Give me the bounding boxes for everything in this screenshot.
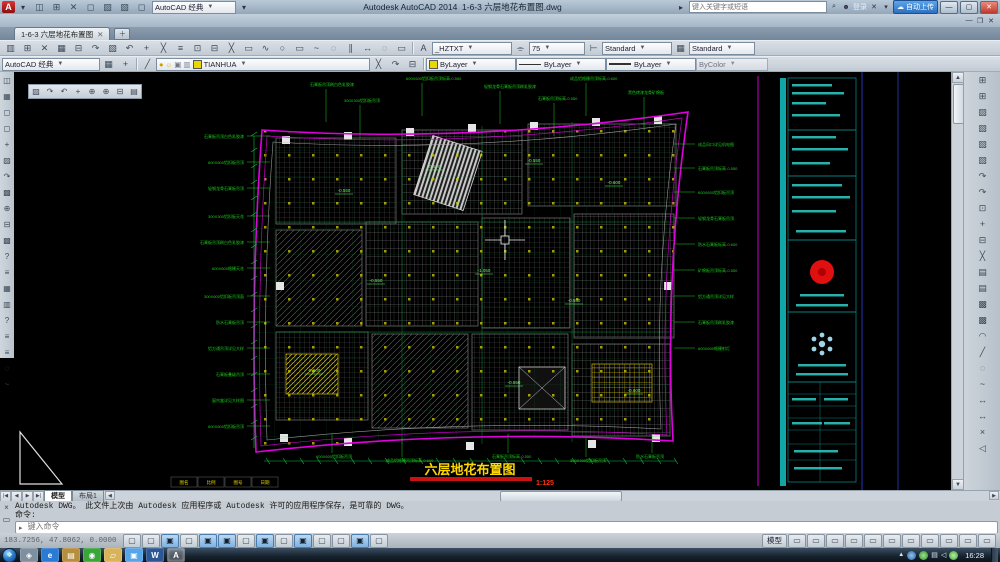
pan-realtime-icon[interactable]: ╳ bbox=[223, 41, 240, 56]
polar-tracking-toggle[interactable]: ▣ bbox=[199, 534, 217, 548]
zoom-previous-icon[interactable]: ○ bbox=[274, 41, 291, 56]
bring-above-objects-icon[interactable]: ↔ bbox=[974, 392, 992, 408]
search-icon[interactable]: ⌕ bbox=[829, 2, 839, 12]
cad-annotation: 600X600铝扣板吊顶 bbox=[208, 423, 244, 429]
layers-properties-toolbar: AutoCAD 经典▼ ▦+ ╱ ● ☼ ▣ ▥ TIANHUA ▼ ╳↷⊟ B… bbox=[0, 56, 1000, 72]
bottom-view-icon[interactable]: ↷ bbox=[43, 85, 57, 98]
clean-screen-icon[interactable]: ▭ bbox=[978, 534, 996, 548]
autoscale-icon[interactable]: ▭ bbox=[921, 534, 939, 548]
cad-annotation: 石膏板吊顶白色乳胶漆 bbox=[204, 133, 244, 139]
my-workspace-icon[interactable]: + bbox=[117, 57, 134, 72]
maximize-button[interactable]: ▢ bbox=[960, 1, 978, 14]
point-icon[interactable]: ▦ bbox=[0, 280, 15, 296]
make-block-icon[interactable]: ≡ bbox=[0, 264, 15, 280]
trim-icon[interactable]: + bbox=[974, 216, 992, 232]
move-icon[interactable]: ▧ bbox=[974, 152, 992, 168]
cad-annotation: -0.600 bbox=[628, 388, 641, 393]
break-icon[interactable]: ▤ bbox=[974, 264, 992, 280]
layer-lock-icon[interactable]: ▣ bbox=[174, 60, 181, 69]
taskbar-word-button[interactable]: W bbox=[146, 548, 164, 562]
construction-line-icon[interactable]: ▦ bbox=[0, 88, 15, 104]
cad-annotation: 铝方通吊顶详见大样 bbox=[698, 293, 734, 299]
cad-annotation: 黑色烤漆龙骨矿棉板 bbox=[628, 89, 664, 95]
command-history-line: Autodesk DWG。 此文件上次由 Autodesk 应用程序或 Auto… bbox=[15, 502, 998, 511]
seiso-view-icon[interactable]: ▤ bbox=[127, 85, 141, 98]
model-space-canvas[interactable]: 六层地花布置图 1:125 图名比例图号日期 石膏板吊顶白色乳胶漆600X600… bbox=[14, 72, 951, 490]
window-title: Autodesk AutoCAD 2014 1-6-3 六层地花布置图.dwg bbox=[252, 1, 673, 13]
command-customize-icon[interactable]: ▭ bbox=[3, 515, 11, 524]
workspace-icons: ▦+ bbox=[100, 57, 134, 72]
text-to-front-icon[interactable]: × bbox=[974, 424, 992, 440]
layer-on-icon[interactable]: ● bbox=[159, 60, 164, 69]
cad-annotation: 石膏板叠级吊顶 bbox=[216, 371, 244, 377]
cad-annotation: 石膏板吊顶刷乳胶漆 bbox=[698, 319, 734, 325]
taskbar-internet-explorer-button[interactable]: e bbox=[41, 548, 59, 562]
qat-customize-icon[interactable]: ▾ bbox=[238, 2, 250, 13]
network-tray-icon[interactable]: ▤ bbox=[931, 551, 938, 559]
taskbar-media-player-button[interactable]: ◈ bbox=[20, 548, 38, 562]
save-as-icon[interactable]: ◻ bbox=[82, 0, 99, 15]
workspace-dropdown[interactable]: AutoCAD 经典▼ bbox=[152, 1, 236, 14]
bottom-cell-label: 图号 bbox=[234, 480, 243, 486]
block-editor-icon[interactable]: ≡ bbox=[172, 41, 189, 56]
cad-annotation: 石膏板吊顶标高-0.550 bbox=[492, 453, 532, 459]
cad-annotation: -0.600 bbox=[608, 180, 621, 185]
tab-first-icon[interactable]: |◀ bbox=[0, 491, 11, 502]
a360-tray-icon[interactable] bbox=[907, 551, 916, 560]
text-height-dropdown[interactable]: 75▼ bbox=[529, 42, 585, 55]
join-icon[interactable]: ▤ bbox=[974, 280, 992, 296]
cad-annotation: 成品铝格栅吊顶标高-0.600 bbox=[570, 75, 618, 81]
new-tab-button[interactable]: ＋ bbox=[114, 28, 130, 40]
model-space-button[interactable]: 模型 bbox=[762, 534, 787, 548]
plot-style-dropdown: ByColor▼ bbox=[696, 58, 768, 71]
taskbar-clock: 16:28 bbox=[961, 551, 988, 560]
workspaces-dropdown[interactable]: AutoCAD 经典▼ bbox=[2, 58, 100, 71]
command-prompt-line: 命令: bbox=[15, 511, 998, 520]
scroll-left-icon[interactable]: ◀ bbox=[105, 491, 115, 500]
polygon-icon[interactable]: ◻ bbox=[0, 120, 15, 136]
cad-annotation: 防水石膏板吊顶 bbox=[216, 319, 244, 325]
zoom-window-icon[interactable]: ∿ bbox=[257, 41, 274, 56]
scroll-right-icon[interactable]: ▶ bbox=[989, 491, 999, 500]
layer-dropdown[interactable]: ● ☼ ▣ ▥ TIANHUA ▼ bbox=[156, 58, 370, 71]
spline-icon[interactable]: ⊕ bbox=[0, 200, 15, 216]
taskbar-folder-button[interactable]: ▱ bbox=[104, 548, 122, 562]
cad-annotation: 防水石膏板标高-0.600 bbox=[698, 241, 738, 247]
erase-icon[interactable]: ⊞ bbox=[974, 72, 992, 88]
bottom-cell-label: 日期 bbox=[261, 480, 270, 486]
command-line-panel: × ▭ Autodesk DWG。 此文件上次由 Autodesk 应用程序或 … bbox=[0, 501, 1000, 533]
scale-icon[interactable]: ↷ bbox=[974, 184, 992, 200]
chevron-down-icon: ▼ bbox=[207, 4, 213, 10]
title-block-strip bbox=[780, 78, 856, 486]
swiso-view-icon[interactable]: ⊟ bbox=[113, 85, 127, 98]
explode-icon[interactable]: ╱ bbox=[974, 344, 992, 360]
dim-style-dropdown[interactable]: Standard▼ bbox=[602, 42, 672, 55]
redo-icon[interactable]: ◻ bbox=[133, 0, 150, 15]
layer-plot-icon[interactable]: ▥ bbox=[184, 60, 191, 69]
send-under-objects-icon[interactable]: ↔ bbox=[974, 408, 992, 424]
cad-annotation: 300X300铝扣板天花 bbox=[208, 213, 244, 219]
bottom-cell-label: 比例 bbox=[207, 479, 216, 486]
paste-icon[interactable]: + bbox=[138, 41, 155, 56]
ucs-icon bbox=[20, 432, 62, 484]
taskbar-qq-button[interactable]: ◉ bbox=[83, 548, 101, 562]
document-window-controls: — ❐ ✕ bbox=[964, 16, 996, 26]
draw-toolbar: ◫▦◻◻+▨↷▩⊕⊟▩?≡▦▥?≡≡◌~ bbox=[0, 72, 15, 358]
cad-annotation: -0.600 bbox=[428, 164, 441, 169]
save-icon[interactable]: ✕ bbox=[36, 41, 53, 56]
title-bar: A ▾ ◫⊞✕◻▨▧◻ AutoCAD 经典▼ ▾ Autodesk AutoC… bbox=[0, 0, 1000, 14]
file-tab-bar: 1-6-3 六层地花布置图 ✕ ＋ bbox=[0, 27, 1000, 40]
taskbar-file-manager-group-button[interactable]: ▤ bbox=[62, 548, 80, 562]
text-style-dropdown[interactable]: _HZTXT▼ bbox=[432, 42, 512, 55]
layer-extra-icons: ╳↷⊟ bbox=[370, 57, 421, 72]
region-icon[interactable]: ≡ bbox=[0, 328, 15, 344]
quick-calc-icon[interactable]: ◌ bbox=[376, 41, 393, 56]
open-icon[interactable]: ⊞ bbox=[19, 41, 36, 56]
standard-toolbar: ▥⊞✕▦⊟↷▧↶+╳≡⊡⊟╳▭∿○▭~◌∥↔◌▭ A _HZTXT▼ ⌯ 75▼… bbox=[0, 40, 1000, 56]
cad-annotation: -0.550 bbox=[528, 158, 541, 163]
standard-toolbar-icons: ▥⊞✕▦⊟↷▧↶+╳≡⊡⊟╳▭∿○▭~◌∥↔◌▭ bbox=[2, 41, 410, 56]
cad-annotation: -0.550 bbox=[338, 188, 351, 193]
publish-icon[interactable]: ↷ bbox=[87, 41, 104, 56]
title-underline bbox=[410, 477, 532, 481]
start-button[interactable]: ❖ bbox=[2, 548, 17, 562]
linetype-dropdown[interactable]: ByLayer▼ bbox=[516, 58, 606, 71]
plot-preview-icon[interactable]: ⊟ bbox=[70, 41, 87, 56]
back-view-icon[interactable]: ⊕ bbox=[99, 85, 113, 98]
cad-annotation: 600X600铝扣板吊顶标高-0.550 bbox=[406, 75, 462, 81]
pan-icon[interactable]: ▭ bbox=[826, 534, 844, 548]
status-toggles: ▢▢▣▢▣▣▢▣▢▣▢▢▣▢ bbox=[123, 534, 388, 548]
modify-toolbar: ⊞⊞▨▧▧▧↷↷⊡+⊟╳▤▤▩▩◠╱◌~↔↔×◁ bbox=[963, 72, 1000, 490]
a360-upload-button[interactable]: ☁ 自动上传 bbox=[893, 0, 938, 14]
save-icon[interactable]: ✕ bbox=[65, 0, 82, 15]
rectangle-icon[interactable]: + bbox=[0, 136, 15, 152]
show-motion-icon[interactable]: ▭ bbox=[883, 534, 901, 548]
cad-annotation: -0.550 bbox=[370, 278, 383, 283]
array-icon[interactable]: ▧ bbox=[974, 136, 992, 152]
quick-view-layouts-icon[interactable]: ▭ bbox=[788, 534, 806, 548]
file-tab[interactable]: 1-6-3 六层地花布置图 ✕ bbox=[14, 27, 110, 40]
tab-next-icon[interactable]: ▶ bbox=[22, 491, 33, 502]
object-snap-tracking-toggle[interactable]: ▣ bbox=[256, 534, 274, 548]
table-style-icon[interactable]: ▦ bbox=[672, 41, 689, 56]
zoom-realtime-icon[interactable]: ▭ bbox=[240, 41, 257, 56]
markup-set-manager-icon[interactable]: ↔ bbox=[359, 41, 376, 56]
cad-annotation: 600X600格栅射灯 bbox=[698, 345, 730, 351]
3d-object-snap-toggle[interactable]: ▢ bbox=[237, 534, 255, 548]
workspace-settings-icon[interactable]: ▦ bbox=[100, 57, 117, 72]
cad-annotation: 石膏板吊顶刷白色乳胶漆 bbox=[310, 81, 354, 87]
autocad-logo-icon[interactable]: A bbox=[2, 1, 15, 13]
doc-close-icon[interactable]: ✕ bbox=[986, 16, 996, 26]
gradient-icon[interactable]: ? bbox=[0, 312, 15, 328]
object-snap-toggle[interactable]: ▣ bbox=[218, 534, 236, 548]
hidden-icons-arrow[interactable]: ▲ bbox=[898, 552, 904, 558]
exchange-apps-icon[interactable]: ✕ bbox=[869, 2, 879, 12]
windows-taskbar: ❖ ◈e▤◉▱▣WA ▲ ▤ ◁ 16:28 bbox=[0, 548, 1000, 562]
cad-annotation: -1.050 bbox=[478, 268, 491, 273]
layer-color-chip bbox=[193, 60, 202, 69]
volume-tray-icon[interactable]: ◁ bbox=[941, 551, 946, 559]
fillet-icon[interactable]: ▩ bbox=[974, 312, 992, 328]
layer-name: TIANHUA bbox=[204, 60, 237, 69]
desktop: A ▾ ◫⊞✕◻▨▧◻ AutoCAD 经典▼ ▾ Autodesk AutoC… bbox=[0, 0, 1000, 562]
snap-mode-toggle[interactable]: ▢ bbox=[142, 534, 160, 548]
minimize-button[interactable]: — bbox=[940, 1, 958, 14]
ortho-mode-toggle[interactable]: ▢ bbox=[180, 534, 198, 548]
lineweight-toggle[interactable]: ▢ bbox=[313, 534, 331, 548]
cad-annotation: 600X600铝扣板吊顶 bbox=[316, 453, 352, 459]
cad-annotation: 轻钢龙骨石膏板吊顶 bbox=[208, 185, 244, 191]
insert-block-icon[interactable]: ? bbox=[0, 248, 15, 264]
tab-prev-icon[interactable]: ◀ bbox=[11, 491, 22, 502]
doc-minimize-icon[interactable]: — bbox=[964, 16, 974, 26]
view-floating-toolbar: ▨↷↶+⊕⊕⊟▤ bbox=[28, 84, 142, 99]
taskbar-notes-app-button[interactable]: ▣ bbox=[125, 548, 143, 562]
drawing-area: ◫▦◻◻+▨↷▩⊕⊟▩?≡▦▥?≡≡◌~ bbox=[0, 72, 1000, 490]
plot-icon[interactable]: ▦ bbox=[53, 41, 70, 56]
new-icon[interactable]: ▥ bbox=[2, 41, 19, 56]
company-logo bbox=[812, 333, 833, 356]
drawing-title: 六层地花布置图 bbox=[424, 462, 515, 477]
signin-label[interactable]: 登录 bbox=[853, 2, 867, 12]
horizontal-scrollbar[interactable]: ◀ ▶ bbox=[105, 491, 999, 501]
tab-last-icon[interactable]: ▶| bbox=[33, 491, 44, 502]
cad-annotation: 轻钢龙骨石膏板吊顶刷乳胶漆 bbox=[484, 83, 536, 89]
redo-icon[interactable]: ⊟ bbox=[206, 41, 223, 56]
tab-close-icon[interactable]: ✕ bbox=[97, 30, 103, 39]
copy-icon[interactable]: ↶ bbox=[121, 41, 138, 56]
qnew-icon[interactable]: ◫ bbox=[31, 0, 48, 15]
break-at-point-icon[interactable]: ╳ bbox=[974, 248, 992, 264]
cad-annotation: 600X600铝扣板吊顶 bbox=[698, 189, 734, 195]
cad-annotation: 600X600格栅天花 bbox=[212, 265, 244, 271]
ellipse-arc-icon[interactable]: ▩ bbox=[0, 232, 15, 248]
table-icon[interactable]: ≡ bbox=[0, 344, 15, 360]
workspace-value: AutoCAD 经典 bbox=[155, 2, 203, 13]
command-close-icon[interactable]: × bbox=[4, 503, 9, 512]
cad-annotation: 600X600铝扣板吊顶 bbox=[208, 159, 244, 165]
chevron-down-icon: ▼ bbox=[241, 61, 247, 67]
close-button[interactable]: ✕ bbox=[980, 1, 998, 14]
help-dropdown-icon[interactable]: ▾ bbox=[881, 2, 891, 12]
arc-icon[interactable]: ▨ bbox=[0, 152, 15, 168]
infer-constraints-toggle[interactable]: ▢ bbox=[123, 534, 141, 548]
cad-annotation: 矿棉板吊顶标高-0.550 bbox=[698, 267, 738, 273]
table-style-dropdown[interactable]: Standard▼ bbox=[689, 42, 755, 55]
steering-wheel-icon[interactable]: ▭ bbox=[864, 534, 882, 548]
extend-icon[interactable]: ⊟ bbox=[974, 232, 992, 248]
open-icon[interactable]: ⊞ bbox=[48, 0, 65, 15]
workspace-switching-icon[interactable]: ▭ bbox=[940, 534, 958, 548]
selection-cycling-toggle[interactable]: ▢ bbox=[370, 534, 388, 548]
circle-icon[interactable]: ↷ bbox=[0, 168, 15, 184]
bottom-cell-label: 图名 bbox=[180, 479, 189, 486]
layer-manager-icons: ╱ bbox=[139, 57, 156, 72]
cad-annotation: 石膏板吊顶标高-0.550 bbox=[538, 95, 578, 101]
offset-icon[interactable]: ▧ bbox=[974, 120, 992, 136]
left-view-icon[interactable]: ↶ bbox=[57, 85, 71, 98]
design-center-icon[interactable]: ~ bbox=[308, 41, 325, 56]
dynamic-input-toggle[interactable]: ▣ bbox=[294, 534, 312, 548]
sheet-set-manager-icon[interactable]: ∥ bbox=[342, 41, 359, 56]
cad-drawing: 六层地花布置图 1:125 图名比例图号日期 石膏板吊顶白色乳胶漆600X600… bbox=[14, 72, 951, 490]
dynamic-ucs-toggle[interactable]: ▢ bbox=[275, 534, 293, 548]
search-expand-icon[interactable]: ▸ bbox=[675, 2, 687, 13]
plot-icon[interactable]: ▨ bbox=[99, 0, 116, 15]
cad-annotation: 铝方通吊顶详见大样 bbox=[208, 345, 244, 351]
menu-bar: — ❐ ✕ bbox=[0, 14, 1000, 27]
layer-properties-manager-icon[interactable]: ╱ bbox=[139, 57, 156, 72]
cad-annotation: -0.550 bbox=[508, 380, 521, 385]
text-style-icon[interactable]: A bbox=[415, 41, 432, 56]
add-selected-icon[interactable]: ~ bbox=[0, 376, 15, 392]
quick-access-toolbar: ◫⊞✕◻▨▧◻ bbox=[31, 0, 150, 15]
undo-icon[interactable]: ⊡ bbox=[189, 41, 206, 56]
cad-annotation: -0.550 bbox=[568, 298, 581, 303]
toolbar-lock-icon[interactable]: ▭ bbox=[959, 534, 977, 548]
dim-style-icon[interactable]: ⊢ bbox=[585, 41, 602, 56]
ellipse-icon[interactable]: ⊟ bbox=[0, 216, 15, 232]
mirror-icon[interactable]: ▨ bbox=[974, 104, 992, 120]
front-view-icon[interactable]: ⊕ bbox=[85, 85, 99, 98]
right-view-icon[interactable]: + bbox=[71, 85, 85, 98]
user-icon[interactable]: ☻ bbox=[841, 2, 851, 12]
tool-palettes-icon[interactable]: ◌ bbox=[325, 41, 342, 56]
doc-restore-icon[interactable]: ❐ bbox=[975, 16, 985, 26]
grid-display-toggle[interactable]: ▣ bbox=[161, 534, 179, 548]
help-icon[interactable]: ▭ bbox=[393, 41, 410, 56]
zoom-icon[interactable]: ▭ bbox=[845, 534, 863, 548]
layer-freeze-icon[interactable]: ☼ bbox=[166, 60, 173, 69]
cad-annotation: 成品铝格栅吊顶标高-0.600 bbox=[386, 457, 434, 463]
line-icon[interactable]: ◫ bbox=[0, 72, 15, 88]
make-object-layer-current-icon[interactable]: ╳ bbox=[370, 57, 387, 72]
cad-annotation: 300X300铝扣板吊顶 bbox=[344, 97, 380, 103]
cad-annotation: 防水石膏板吊顶 bbox=[636, 453, 664, 459]
revision-cloud-icon[interactable]: ▩ bbox=[0, 184, 15, 200]
copy-icon[interactable]: ⊞ bbox=[974, 88, 992, 104]
cad-annotation: 成品风口详见机电图 bbox=[698, 141, 734, 147]
command-arrow-icon[interactable]: ▸ bbox=[19, 524, 23, 532]
undo-icon[interactable]: ▧ bbox=[116, 0, 133, 15]
cad-annotation: 300X300铝扣板吊顶 bbox=[570, 457, 606, 463]
send-to-back-icon[interactable]: ~ bbox=[974, 376, 992, 392]
stretch-icon[interactable]: ⊡ bbox=[974, 200, 992, 216]
safety-tray-icon[interactable] bbox=[919, 551, 928, 560]
taskbar-autocad-button[interactable]: A bbox=[167, 548, 185, 562]
show-desktop-button[interactable] bbox=[991, 548, 998, 562]
vertical-scrollbar[interactable]: ▲ ▼ bbox=[951, 72, 963, 490]
shield-tray-icon[interactable] bbox=[949, 551, 958, 560]
drawing-scale: 1:125 bbox=[536, 480, 554, 487]
bring-to-front-icon[interactable]: ◌ bbox=[974, 360, 992, 376]
cad-annotation: 石膏板吊顶刷白色乳胶漆 bbox=[200, 239, 244, 245]
coordinates-readout: 183.7256, 47.8062, 0.0000 bbox=[4, 537, 122, 545]
hatch-icon[interactable]: ▥ bbox=[0, 296, 15, 312]
bottom-mini-table: 图名比例图号日期 bbox=[171, 477, 278, 487]
cad-annotation: 300X600铝扣板吊顶面 bbox=[204, 293, 244, 299]
status-right-cluster: 模型 ▭▭▭▭▭▭▭▭▭▭▭ bbox=[762, 534, 996, 548]
layer-previous-icon[interactable]: ⊟ bbox=[404, 57, 421, 72]
chamfer-icon[interactable]: ▩ bbox=[974, 296, 992, 312]
match-properties-icon[interactable]: ╳ bbox=[155, 41, 172, 56]
cut-icon[interactable]: ▧ bbox=[104, 41, 121, 56]
hatch-to-back-icon[interactable]: ◁ bbox=[974, 440, 992, 456]
status-bar: 183.7256, 47.8062, 0.0000 ▢▢▣▢▣▣▢▣▢▣▢▢▣▢… bbox=[0, 533, 1000, 548]
layer-match-icon[interactable]: ↷ bbox=[387, 57, 404, 72]
cad-annotation: 窗帘盒详见大样图 bbox=[212, 397, 244, 403]
properties-icon[interactable]: ▭ bbox=[291, 41, 308, 56]
taskbar-buttons: ◈e▤◉▱▣WA bbox=[20, 548, 185, 562]
system-tray: ▲ ▤ ◁ 16:28 bbox=[898, 548, 998, 562]
cad-annotation: 石膏板吊顶标高-0.550 bbox=[698, 165, 738, 171]
quick-properties-toggle[interactable]: ▣ bbox=[351, 534, 369, 548]
text-height-icon[interactable]: ⌯ bbox=[512, 41, 529, 56]
command-input[interactable] bbox=[26, 522, 994, 533]
layout-tab-bar: |◀ ◀ ▶ ▶| 模型 布局1 ◀ ▶ bbox=[0, 490, 1000, 501]
quick-view-drawings-icon[interactable]: ▭ bbox=[807, 534, 825, 548]
lights-overlay bbox=[254, 112, 688, 452]
color-dropdown[interactable]: ByLayer▼ bbox=[426, 58, 516, 71]
multiline-text-icon[interactable]: ◌ bbox=[0, 360, 15, 376]
top-view-icon[interactable]: ▨ bbox=[29, 85, 43, 98]
cad-annotation: -0.600 bbox=[308, 368, 321, 373]
logo-dropdown-icon[interactable]: ▾ bbox=[17, 2, 29, 13]
cloud-icon: ☁ bbox=[897, 3, 904, 11]
cad-annotation: 轻钢龙骨石膏板吊顶 bbox=[698, 215, 734, 221]
lineweight-dropdown[interactable]: ByLayer▼ bbox=[606, 58, 696, 71]
blend-curves-icon[interactable]: ◠ bbox=[974, 328, 992, 344]
command-line-controls: × ▭ bbox=[0, 501, 13, 533]
search-input[interactable] bbox=[689, 1, 827, 13]
polyline-icon[interactable]: ◻ bbox=[0, 104, 15, 120]
annotation-visibility-icon[interactable]: ▭ bbox=[902, 534, 920, 548]
rotate-icon[interactable]: ↷ bbox=[974, 168, 992, 184]
transparency-toggle[interactable]: ▢ bbox=[332, 534, 350, 548]
